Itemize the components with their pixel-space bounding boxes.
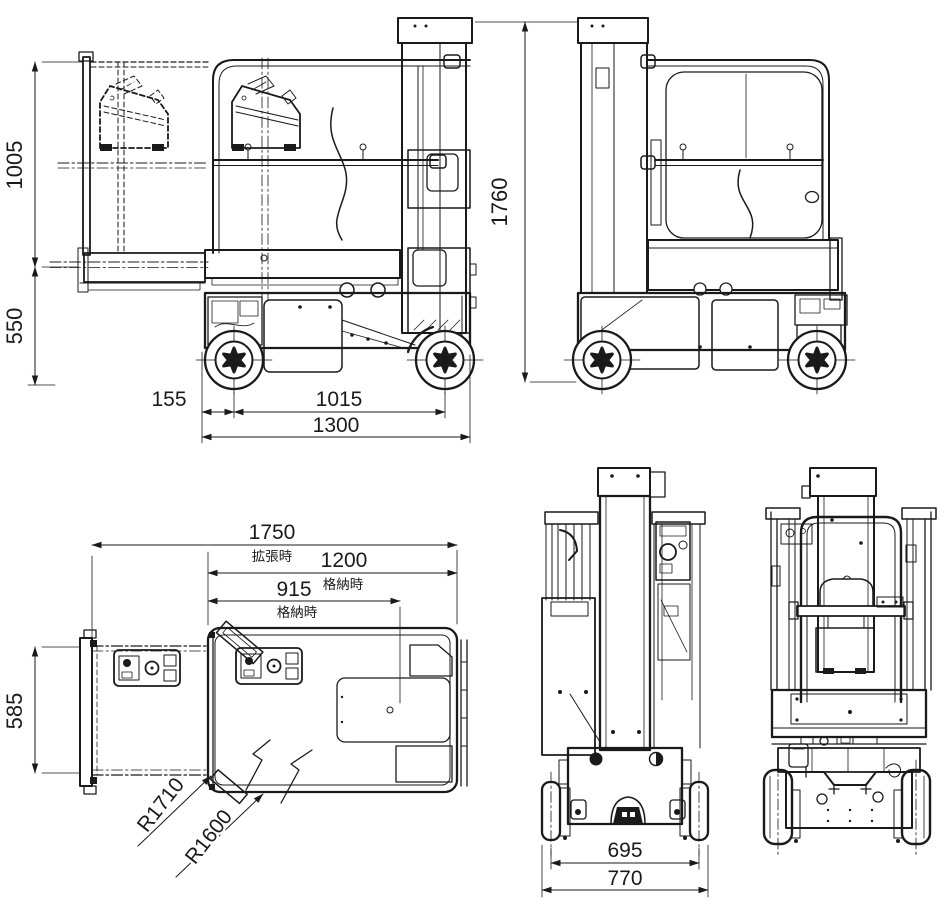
rear-wheel: [779, 326, 855, 394]
mast: [802, 468, 876, 672]
mast: [570, 468, 665, 750]
lift-dimension-drawing: 1005 550 155 1015 1300 1760: [0, 0, 949, 911]
break-line: [246, 740, 270, 790]
guardrail-frame: [542, 512, 705, 755]
side-cover-panel: [542, 598, 595, 755]
dim-turning-radius-inner: R1600: [181, 806, 237, 869]
wheels-rear-view: [764, 760, 930, 856]
front-view: 695 770: [542, 468, 708, 897]
dimension-drawing-canvas: 1005 550 155 1015 1300 1760: [0, 0, 949, 911]
mast: [578, 18, 655, 293]
dim-platform-height: 1005: [2, 141, 27, 190]
side-view-extended: 1005 550 155 1015 1300: [2, 18, 483, 443]
dim-length-stowed: 1200: [321, 549, 368, 572]
corner-bracket-tilted: [210, 770, 247, 804]
extension-deck-plan: [80, 630, 208, 794]
extension-console-plan: [114, 650, 180, 686]
dim-note-stowed-1: 格納時: [323, 577, 364, 592]
dim-overall-length: 1300: [313, 414, 360, 437]
dim-overall-width: 770: [607, 867, 642, 890]
plan-view-dimensions: 1750 拡張時 1200 格納時 915 格納時 585 R1710 R160…: [2, 521, 457, 877]
seat-pad: [820, 579, 873, 606]
platform-floor: [205, 250, 400, 278]
platform-base: [772, 690, 926, 767]
platform-side-panel: [666, 72, 822, 238]
dim-wheelbase: 1015: [316, 388, 363, 411]
extension-deck-phantom: [50, 52, 210, 292]
dim-note-stowed-2: 格納時: [277, 605, 318, 620]
dim-length-extended: 1750: [249, 521, 296, 544]
front-view-dimensions: 695 770: [542, 839, 708, 897]
dim-chassis-height: 550: [2, 308, 27, 345]
chassis: [559, 748, 691, 824]
rear-view: [764, 468, 936, 856]
main-deck-plan: [208, 621, 467, 803]
dim-deck-width: 585: [2, 693, 27, 730]
platform-console-plan: [236, 648, 302, 684]
platform-console-phantom: [100, 76, 168, 151]
dim-note-extended: 拡張時: [252, 549, 293, 564]
front-wheel: [564, 326, 640, 394]
hydraulic-hose: [331, 108, 347, 240]
mast: [398, 18, 476, 333]
overall-height-dimension: 1760: [475, 22, 578, 382]
hydraulic-hose: [738, 170, 753, 238]
platform-console: [232, 76, 300, 151]
dim-platform-length-stowed: 915: [276, 578, 311, 601]
side-view-opposite: 1760: [475, 18, 855, 394]
dim-track-width: 695: [607, 839, 642, 862]
break-line: [281, 750, 312, 803]
plan-view: 1750 拡張時 1200 格納時 915 格納時 585 R1710 R160…: [2, 521, 467, 877]
chassis: [778, 748, 920, 828]
pothole-guard: [613, 807, 643, 824]
platform-guardrails: [205, 55, 470, 300]
dim-front-overhang: 155: [151, 388, 186, 411]
upper-control-box: [656, 522, 690, 580]
dim-overall-height: 1760: [487, 178, 512, 227]
platform-guardrails: [648, 60, 842, 300]
